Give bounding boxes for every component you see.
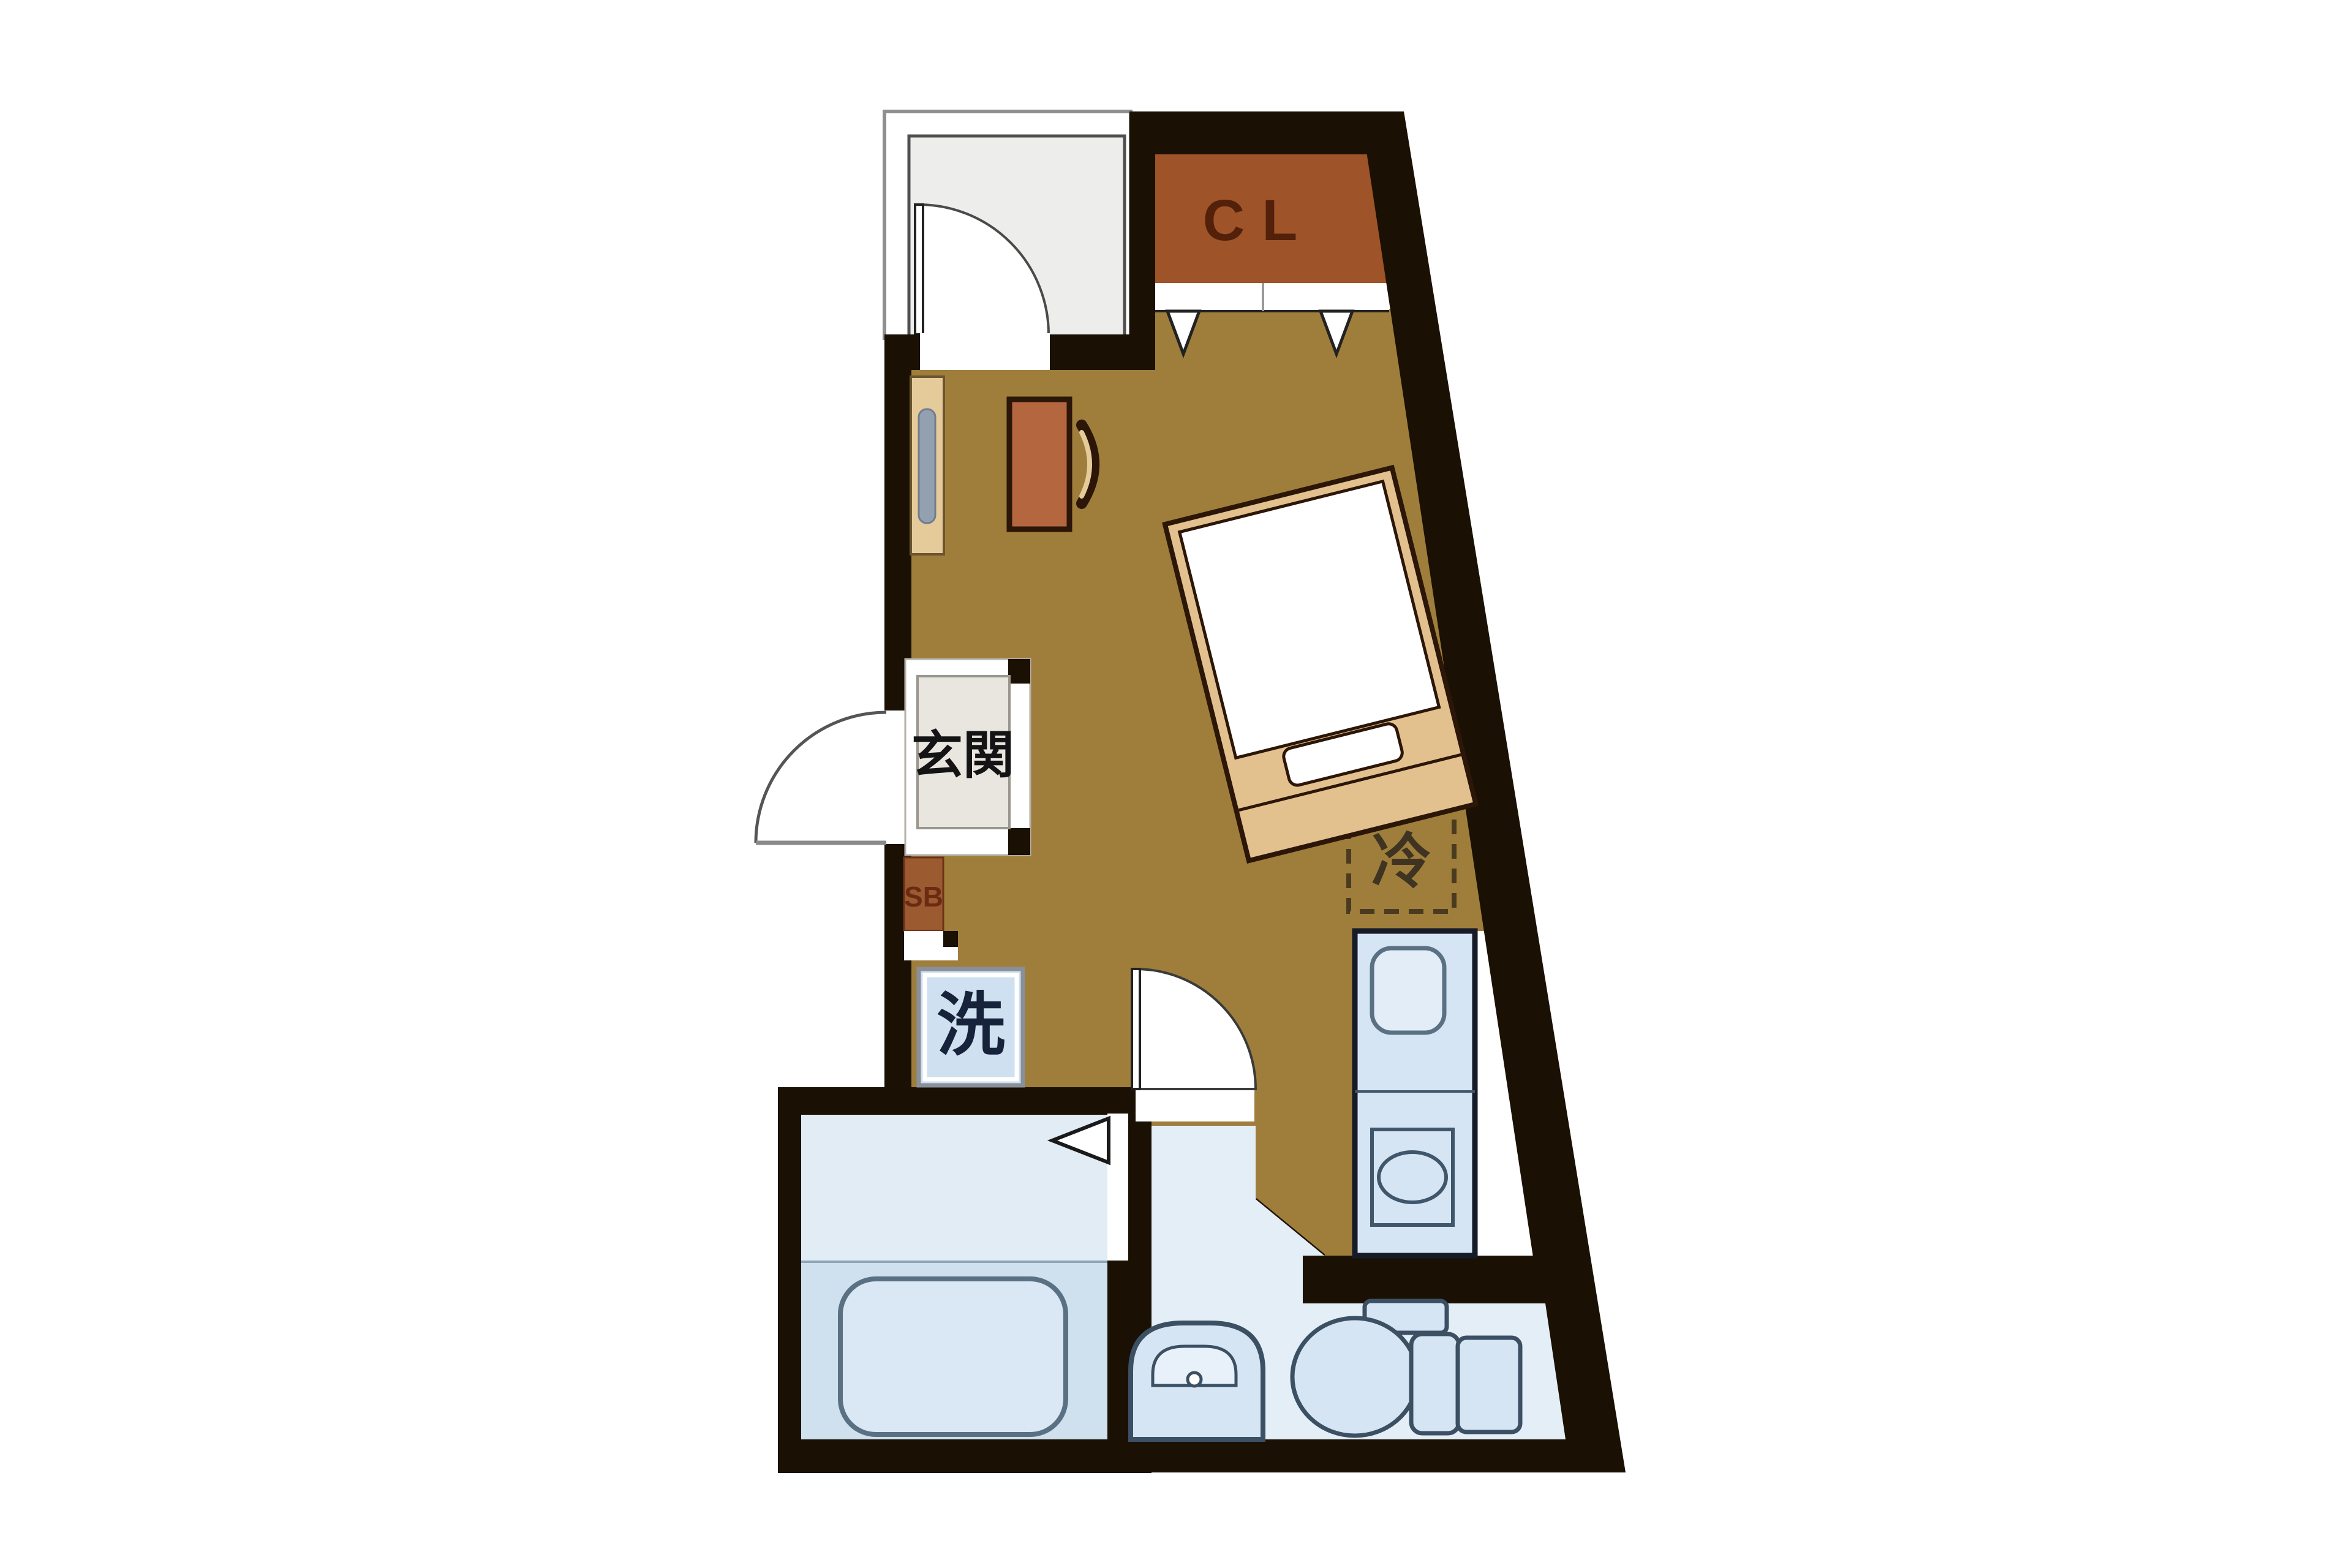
washing-machine-label: 洗 [937,987,1005,1063]
opening-gray-room [920,333,1050,370]
bathroom [801,1114,1128,1439]
entrance-label: 玄関 [911,726,1014,784]
gray-room-door-leaf [915,205,923,334]
wall-gray-room-right [1129,111,1155,370]
kitchen [1355,931,1475,1256]
washbasin [1131,1323,1263,1439]
kitchen-sink [1372,948,1444,1033]
opening-washroom [1136,1087,1254,1121]
toilet-bowl [1292,1318,1417,1436]
wall-shelf [911,377,944,554]
refrigerator-label: 冷 [1371,827,1431,895]
entrance-wall-stub-top [1008,659,1030,684]
floor-plan: CL [0,0,2352,1568]
bathroom-door-opening [1107,1114,1128,1261]
toilet-tank [1458,1338,1520,1432]
wall-stub-sb [943,931,958,947]
washroom-door-leaf [1132,969,1140,1089]
washbasin-drain-icon [1188,1373,1201,1386]
page: CL [0,0,2352,1568]
desk [1009,399,1069,529]
wall-bottom [778,1439,1626,1472]
wall-under-kitchen [1303,1256,1545,1303]
washing-machine: 洗 [919,969,1023,1085]
entrance-wall-stub-bottom [1008,828,1030,855]
closet-door-track [1155,283,1389,311]
bathtub [840,1279,1066,1434]
toilet-seat-hinge [1411,1334,1459,1433]
gray-room [884,111,1131,338]
wall-shelf-rail [919,409,935,523]
closet-label: CL [1203,188,1315,253]
shoe-cabinet-label: SB [904,881,943,913]
